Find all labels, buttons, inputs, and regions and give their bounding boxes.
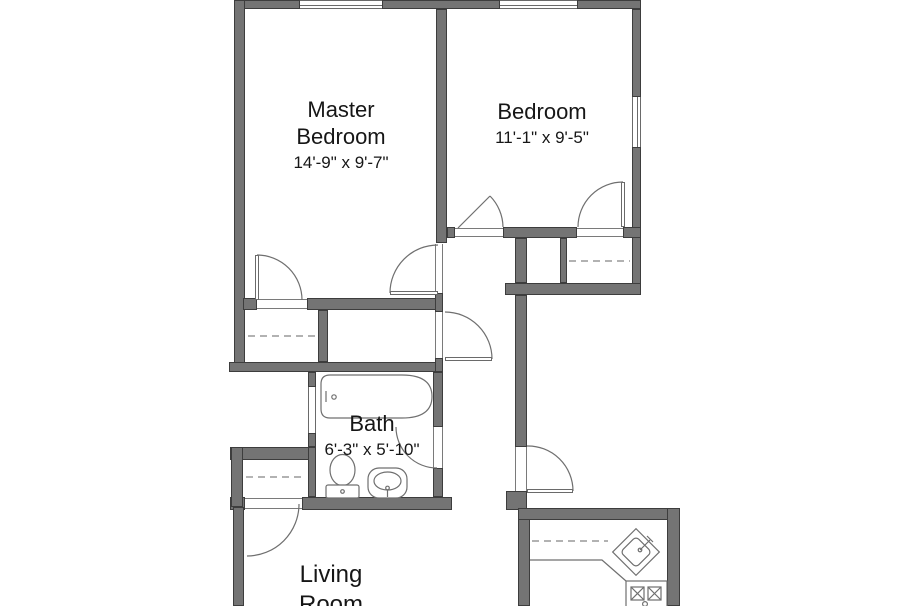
bedroom-label: Bedroom 11'-1" x 9'-5": [467, 98, 617, 148]
living-room-label: Living Room: [277, 560, 385, 606]
bathroom-sink: [368, 468, 407, 498]
room-name: Bath: [301, 410, 443, 437]
room-name: Master Bedroom: [283, 96, 399, 150]
door-arc: [257, 255, 302, 300]
bath-label: Bath 6'-3" x 5'-10": [301, 410, 443, 460]
toilet: [326, 455, 359, 499]
floor-plan: Master Bedroom 14'-9" x 9'-7" Bedroom 11…: [0, 0, 910, 606]
closet-rods: [246, 261, 630, 541]
door-swing-arcs: [247, 182, 623, 556]
kitchen-sink-counter: [613, 529, 660, 576]
kitchen-counter: [530, 560, 626, 581]
door-arc: [527, 446, 573, 491]
room-dimensions: 11'-1" x 9'-5": [467, 128, 617, 148]
door-arc: [578, 182, 623, 227]
fixtures-overlay: [0, 0, 910, 606]
room-name: Bedroom: [467, 98, 617, 125]
toilet-tank: [326, 485, 359, 498]
room-dimensions: 6'-3" x 5'-10": [301, 440, 443, 460]
stove: [626, 581, 667, 606]
room-dimensions: 14'-9" x 9'-7": [266, 153, 416, 173]
door-leaf-diagonal: [458, 196, 490, 228]
master-bedroom-label: Master Bedroom 14'-9" x 9'-7": [266, 96, 416, 173]
kitchen-corner-sink: [613, 529, 660, 576]
door-arc: [247, 504, 299, 556]
door-arc: [445, 312, 492, 359]
kitchen-counter-edge: [530, 560, 626, 581]
room-name: Living Room: [277, 560, 385, 606]
door-arc: [390, 245, 438, 293]
door-arc: [490, 196, 503, 227]
